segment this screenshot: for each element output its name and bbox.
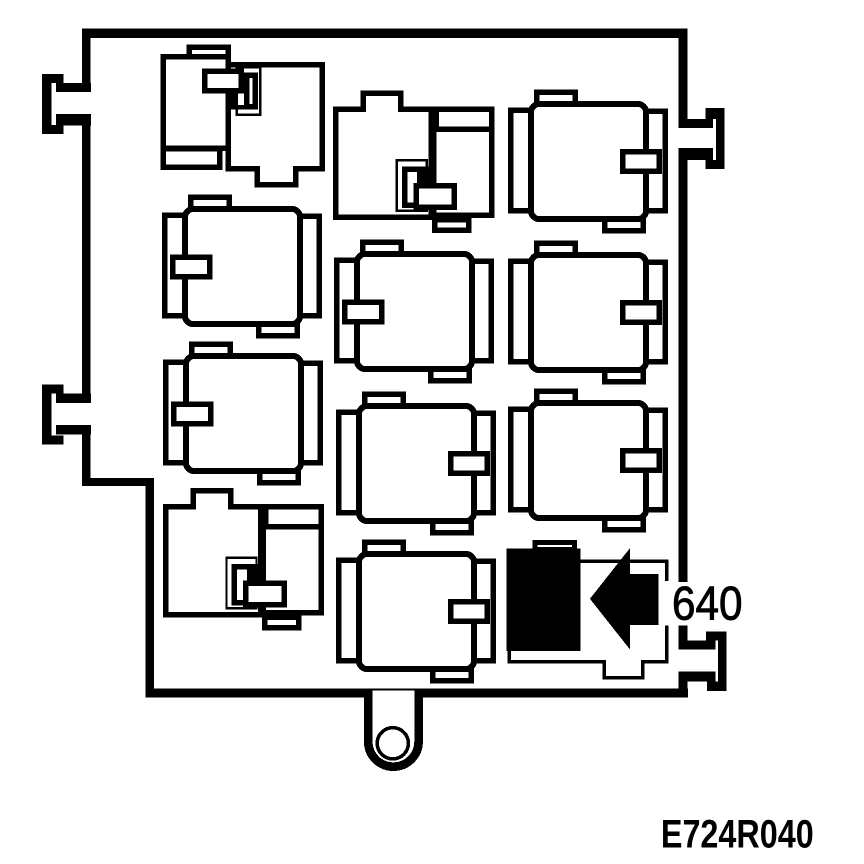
svg-text:E724R040: E724R040 bbox=[661, 812, 814, 856]
svg-text:640: 640 bbox=[672, 578, 743, 631]
